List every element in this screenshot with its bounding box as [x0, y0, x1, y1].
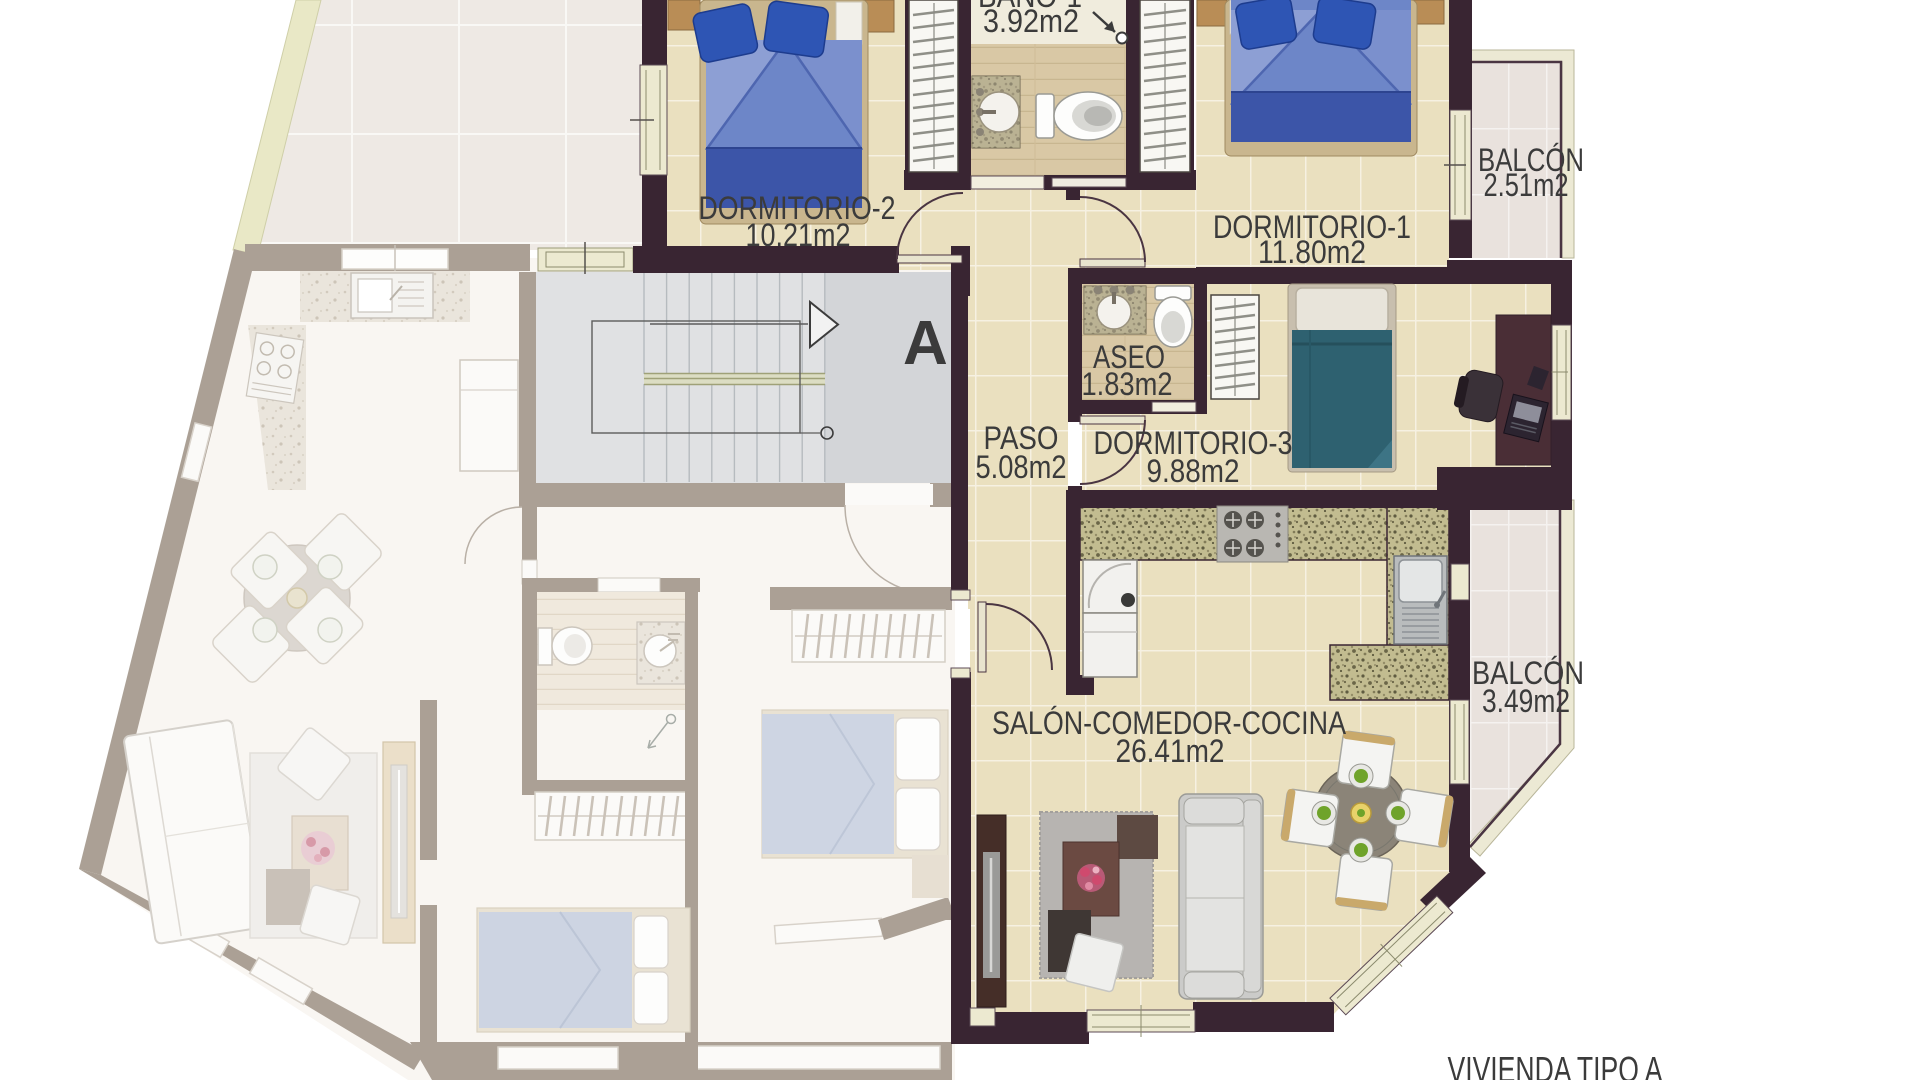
svg-text:5.08m2: 5.08m2: [976, 449, 1067, 485]
svg-text:3.92m2: 3.92m2: [983, 3, 1079, 39]
svg-text:26.41m2: 26.41m2: [1116, 733, 1225, 769]
svg-text:VIVIENDA TIPO A: VIVIENDA TIPO A: [1448, 1049, 1663, 1080]
svg-text:11.80m2: 11.80m2: [1258, 234, 1366, 270]
svg-text:3.49m2: 3.49m2: [1482, 683, 1570, 719]
svg-text:10.21m2: 10.21m2: [746, 217, 851, 253]
svg-text:9.88m2: 9.88m2: [1147, 453, 1240, 489]
svg-text:1.83m2: 1.83m2: [1082, 366, 1173, 402]
svg-text:2.51m2: 2.51m2: [1484, 167, 1569, 203]
svg-text:A: A: [903, 309, 948, 378]
